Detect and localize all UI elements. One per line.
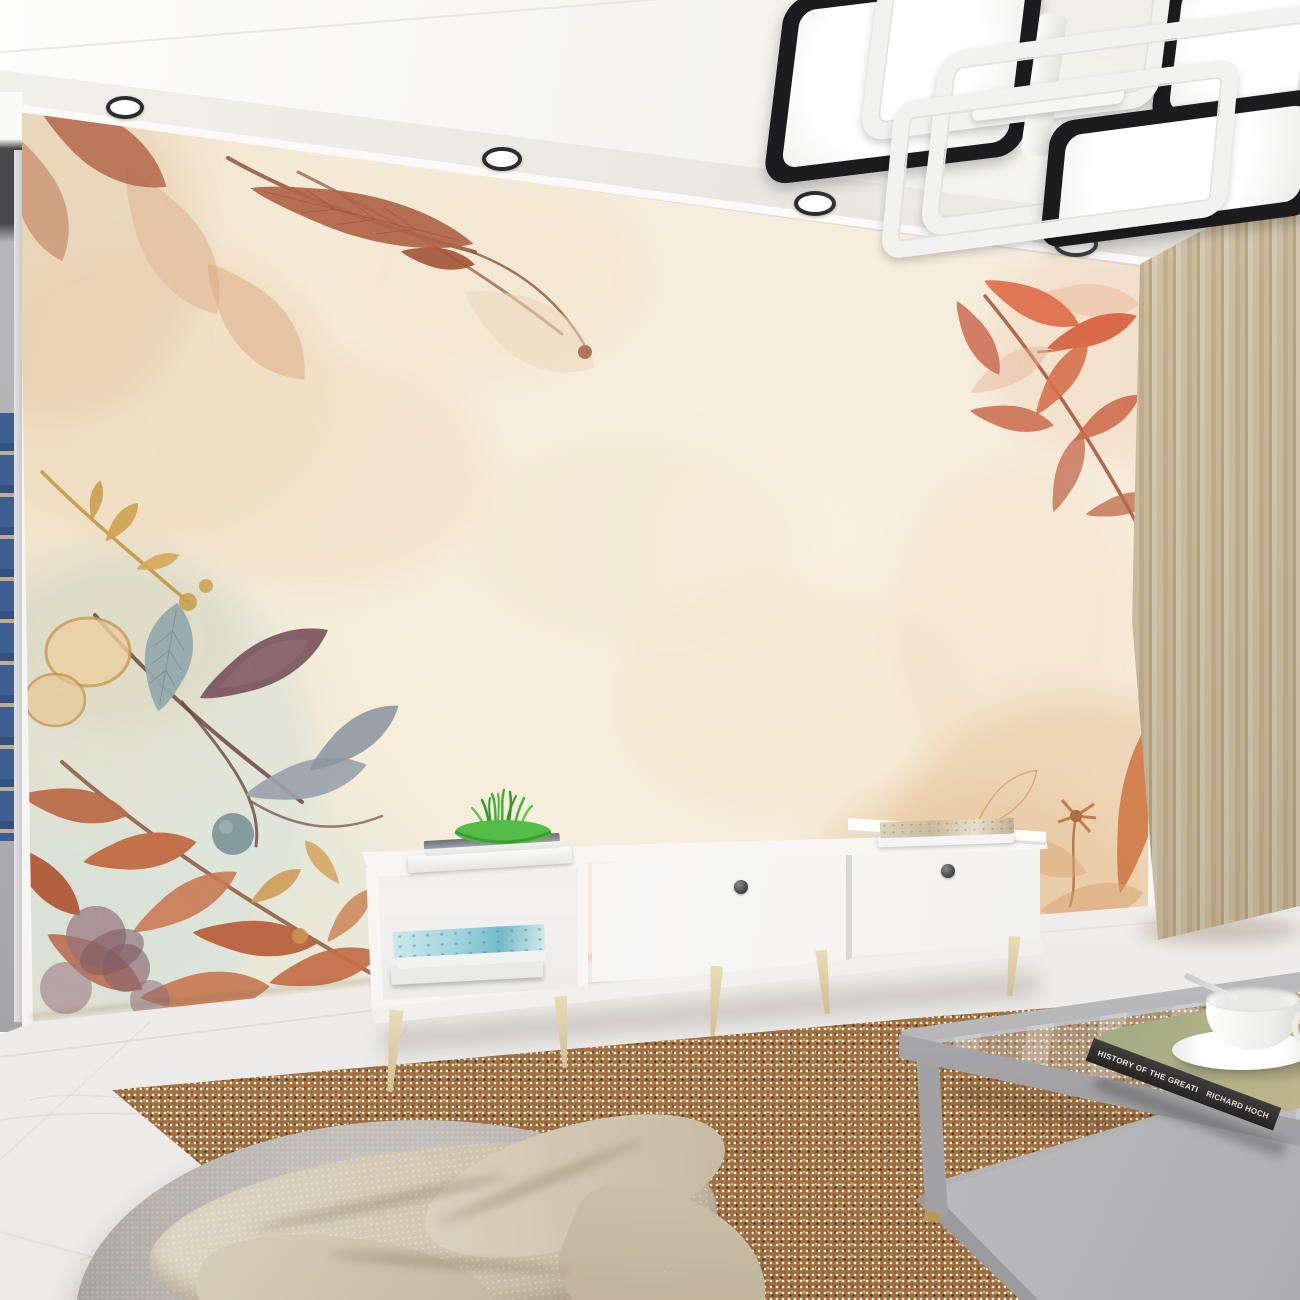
grass-plant-in-leaf-dish [428,780,578,846]
drawer-knob [941,864,955,878]
living-room-scene: HISTORY OF THE GREATEST PLACES RICHARD H… [0,0,1300,1300]
coffee-table-foot [923,1211,940,1223]
recessed-spotlight [482,147,522,171]
drawer-knob [734,880,748,894]
door-frame [14,150,22,1022]
recessed-spotlight [106,96,144,119]
